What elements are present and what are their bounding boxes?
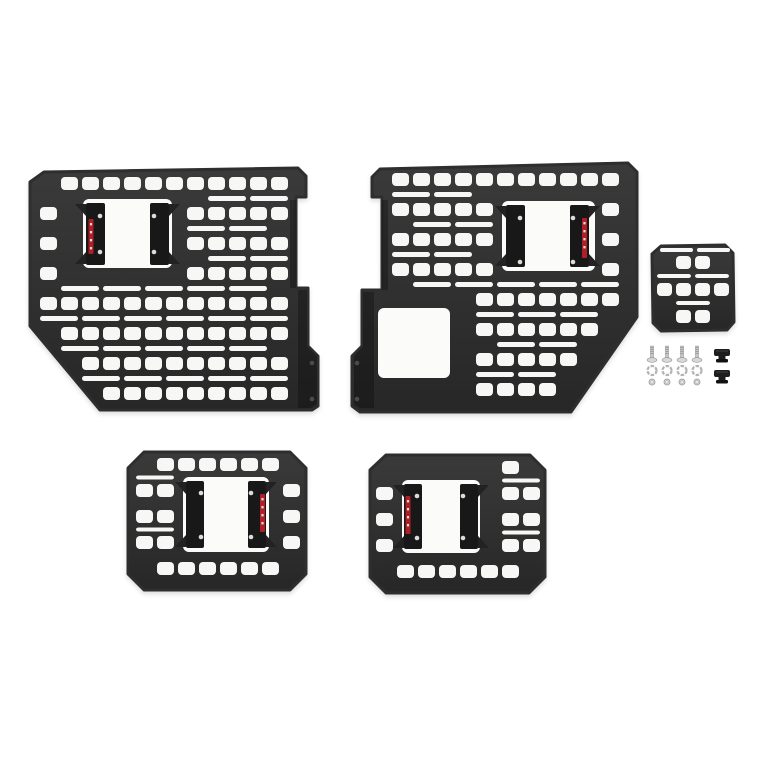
grid-slot — [413, 222, 451, 227]
grid-hole — [271, 237, 288, 250]
grid-slot — [103, 346, 141, 351]
bracket-screw-hole — [152, 250, 157, 255]
flange-hole — [355, 397, 360, 402]
bracket-screw-hole — [152, 214, 157, 219]
bracket-screw-hole — [571, 260, 576, 265]
grid-hole — [82, 177, 99, 190]
grid-hole — [714, 283, 729, 296]
grid-hole — [40, 207, 57, 220]
grid-slot — [392, 192, 430, 197]
grid-hole — [657, 283, 672, 296]
bracket-screw-hole — [98, 214, 103, 219]
grid-hole — [376, 539, 393, 552]
grid-slot — [208, 316, 246, 321]
grid-hole — [434, 263, 451, 276]
grid-hole — [502, 461, 519, 474]
panel-kit-layout — [30, 163, 734, 593]
grid-hole — [497, 383, 514, 396]
grid-hole — [61, 297, 78, 310]
grid-hole — [208, 267, 225, 280]
bracket-screw-hole — [415, 494, 420, 499]
grid-hole — [455, 263, 472, 276]
grid-hole — [518, 323, 535, 336]
grid-slot — [166, 316, 204, 321]
grid-hole — [581, 323, 598, 336]
lock-washer — [648, 366, 657, 375]
grid-hole — [560, 173, 577, 186]
grid-slot — [136, 476, 174, 480]
grid-slot — [455, 222, 493, 227]
grid-hole — [136, 484, 153, 497]
bracket-screw-hole — [98, 250, 103, 255]
grid-slot — [518, 372, 556, 377]
hex-nut — [694, 379, 700, 385]
grid-slot — [82, 316, 120, 321]
grid-slot — [250, 316, 288, 321]
grid-hole — [392, 263, 409, 276]
grid-slot — [413, 282, 451, 287]
grid-slot — [434, 192, 472, 197]
mounting-bolt — [647, 346, 657, 362]
molle-panel-large-driver-side — [30, 168, 318, 410]
grid-hole — [241, 562, 258, 575]
grid-slot — [695, 274, 729, 278]
grid-hole — [124, 357, 141, 370]
grid-hole — [40, 237, 57, 250]
grid-hole — [602, 263, 619, 276]
grid-slot — [476, 312, 514, 317]
grid-hole — [439, 565, 456, 578]
flange-hole — [355, 361, 360, 366]
grid-hole — [481, 565, 498, 578]
grid-slot — [124, 376, 162, 381]
grid-hole — [502, 513, 519, 526]
grid-hole — [392, 173, 409, 186]
bracket-screw-hole — [199, 491, 204, 496]
grid-hole — [199, 458, 216, 471]
hex-nut — [679, 379, 685, 385]
grid-hole — [157, 510, 174, 523]
grid-slot — [61, 346, 99, 351]
grid-slot — [208, 376, 246, 381]
grid-hole — [502, 539, 519, 552]
grid-slot — [229, 226, 267, 231]
grid-hole — [502, 565, 519, 578]
mounting-bolt — [692, 346, 702, 362]
grid-hole — [187, 327, 204, 340]
grid-slot — [40, 316, 78, 321]
grid-hole — [376, 487, 393, 500]
grid-slot — [166, 376, 204, 381]
grid-hole — [187, 387, 204, 400]
grid-slot — [497, 342, 535, 347]
grid-slot — [497, 282, 535, 287]
grid-hole — [208, 357, 225, 370]
grid-hole — [283, 510, 300, 523]
grid-hole — [581, 173, 598, 186]
grid-hole — [602, 293, 619, 306]
grid-hole — [523, 487, 540, 500]
grid-slot — [560, 312, 598, 317]
grid-hole — [208, 327, 225, 340]
grid-slot — [145, 346, 183, 351]
flange-hole — [310, 397, 315, 402]
grid-hole — [157, 458, 174, 471]
bracket-window-cutout — [378, 308, 450, 378]
hex-nut — [664, 379, 670, 385]
grid-slot — [187, 226, 225, 231]
grid-hole — [497, 353, 514, 366]
grid-slot — [229, 346, 267, 351]
grid-slot — [145, 286, 183, 291]
grid-hole — [539, 293, 556, 306]
grid-hole — [166, 177, 183, 190]
grid-hole — [455, 173, 472, 186]
grid-hole — [523, 513, 540, 526]
grid-slot — [502, 479, 540, 483]
grid-slot — [187, 286, 225, 291]
grid-slot — [660, 248, 693, 252]
grid-hole — [199, 562, 216, 575]
grid-slot — [136, 528, 174, 532]
grid-hole — [518, 353, 535, 366]
grid-hole — [476, 353, 493, 366]
grid-hole — [250, 327, 267, 340]
grid-hole — [229, 207, 246, 220]
grid-hole — [434, 173, 451, 186]
hex-nut — [649, 379, 655, 385]
mounting-flange — [290, 200, 296, 288]
bed-rail-clamp — [714, 370, 730, 384]
mounting-bolt — [677, 346, 687, 362]
bracket-screw-hole — [415, 536, 420, 541]
grid-hole — [187, 357, 204, 370]
grid-hole — [124, 297, 141, 310]
grid-hole — [502, 487, 519, 500]
grid-hole — [271, 177, 288, 190]
grid-hole — [497, 323, 514, 336]
grid-hole — [82, 357, 99, 370]
flange-hole — [310, 361, 315, 366]
grid-hole — [695, 310, 710, 323]
grid-slot — [434, 252, 472, 257]
grid-hole — [602, 233, 619, 246]
grid-slot — [657, 274, 691, 278]
grid-hole — [250, 267, 267, 280]
grid-hole — [413, 173, 430, 186]
grid-hole — [271, 357, 288, 370]
grid-hole — [157, 536, 174, 549]
bracket-screw-hole — [249, 491, 254, 496]
grid-hole — [271, 297, 288, 310]
grid-slot — [82, 376, 120, 381]
bracket-screw-hole — [199, 535, 204, 540]
lock-washer — [678, 366, 687, 375]
grid-hole — [676, 283, 691, 296]
grid-hole — [539, 323, 556, 336]
grid-hole — [136, 536, 153, 549]
grid-hole — [413, 263, 430, 276]
grid-hole — [145, 387, 162, 400]
grid-slot — [518, 312, 556, 317]
grid-hole — [40, 297, 57, 310]
grid-slot — [103, 286, 141, 291]
bracket-screw-hole — [571, 216, 576, 221]
lock-washer — [663, 366, 672, 375]
mounting-hardware-kit — [647, 346, 730, 385]
grid-hole — [124, 177, 141, 190]
grid-slot — [581, 282, 619, 287]
grid-hole — [250, 387, 267, 400]
grid-hole — [187, 297, 204, 310]
grid-hole — [229, 177, 246, 190]
grid-hole — [271, 267, 288, 280]
grid-hole — [539, 383, 556, 396]
mounting-flange — [382, 200, 388, 290]
grid-hole — [250, 297, 267, 310]
grid-hole — [124, 387, 141, 400]
grid-slot — [250, 256, 288, 261]
grid-hole — [82, 327, 99, 340]
grid-hole — [434, 203, 451, 216]
grid-hole — [397, 565, 414, 578]
grid-hole — [166, 387, 183, 400]
grid-slot — [476, 372, 514, 377]
grid-hole — [455, 233, 472, 246]
molle-panel-medium-right — [370, 455, 545, 593]
grid-hole — [166, 327, 183, 340]
grid-hole — [262, 562, 279, 575]
grid-hole — [250, 357, 267, 370]
grid-hole — [103, 297, 120, 310]
grid-slot — [392, 252, 430, 257]
grid-hole — [187, 237, 204, 250]
grid-hole — [229, 297, 246, 310]
grid-hole — [220, 458, 237, 471]
grid-hole — [476, 173, 493, 186]
lock-washer — [693, 366, 702, 375]
grid-hole — [220, 562, 237, 575]
grid-hole — [581, 293, 598, 306]
grid-hole — [418, 565, 435, 578]
grid-hole — [476, 263, 493, 276]
grid-hole — [103, 327, 120, 340]
grid-hole — [157, 562, 174, 575]
grid-hole — [523, 539, 540, 552]
grid-hole — [413, 233, 430, 246]
grid-hole — [283, 536, 300, 549]
grid-hole — [187, 267, 204, 280]
grid-hole — [560, 293, 577, 306]
grid-hole — [271, 207, 288, 220]
grid-slot — [61, 286, 99, 291]
grid-hole — [518, 383, 535, 396]
grid-hole — [455, 203, 472, 216]
mounting-bolt — [662, 346, 672, 362]
grid-hole — [145, 357, 162, 370]
grid-hole — [560, 323, 577, 336]
grid-hole — [187, 207, 204, 220]
grid-hole — [283, 484, 300, 497]
bracket-screw-hole — [518, 260, 523, 265]
grid-hole — [229, 267, 246, 280]
grid-hole — [460, 565, 477, 578]
grid-slot — [250, 376, 288, 381]
grid-hole — [241, 458, 258, 471]
grid-hole — [208, 387, 225, 400]
grid-hole — [208, 207, 225, 220]
grid-hole — [166, 297, 183, 310]
grid-slot — [676, 301, 710, 305]
grid-hole — [271, 387, 288, 400]
grid-slot — [502, 531, 540, 535]
grid-hole — [476, 293, 493, 306]
grid-hole — [602, 203, 619, 216]
grid-hole — [136, 510, 153, 523]
grid-hole — [166, 357, 183, 370]
grid-hole — [392, 233, 409, 246]
bracket-screw-hole — [518, 216, 523, 221]
grid-hole — [61, 177, 78, 190]
grid-hole — [103, 357, 120, 370]
molle-panel-accessory-small — [652, 245, 734, 331]
grid-hole — [376, 513, 393, 526]
grid-hole — [434, 233, 451, 246]
scene-svg — [0, 0, 758, 757]
grid-hole — [145, 327, 162, 340]
grid-hole — [476, 233, 493, 246]
molle-panel-large-passenger-side — [352, 163, 637, 412]
grid-hole — [695, 283, 710, 296]
grid-hole — [676, 310, 691, 323]
bracket-screw-hole — [249, 535, 254, 540]
grid-slot — [697, 248, 730, 252]
grid-hole — [229, 357, 246, 370]
grid-hole — [539, 353, 556, 366]
grid-hole — [208, 177, 225, 190]
grid-slot — [539, 282, 577, 287]
grid-hole — [602, 173, 619, 186]
grid-hole — [250, 207, 267, 220]
grid-hole — [40, 267, 57, 280]
grid-hole — [476, 383, 493, 396]
grid-hole — [518, 293, 535, 306]
grid-slot — [250, 196, 288, 201]
product-photo-stage — [0, 0, 758, 757]
grid-hole — [250, 177, 267, 190]
grid-hole — [497, 173, 514, 186]
grid-hole — [61, 327, 78, 340]
grid-hole — [676, 256, 691, 269]
grid-hole — [518, 173, 535, 186]
grid-hole — [497, 293, 514, 306]
grid-hole — [208, 297, 225, 310]
grid-hole — [250, 237, 267, 250]
grid-hole — [392, 203, 409, 216]
grid-hole — [695, 256, 710, 269]
grid-slot — [187, 346, 225, 351]
bracket-screw-hole — [461, 494, 466, 499]
grid-slot — [229, 286, 267, 291]
grid-hole — [229, 387, 246, 400]
bracket-screw-hole — [461, 536, 466, 541]
grid-hole — [178, 458, 195, 471]
grid-hole — [229, 237, 246, 250]
grid-hole — [229, 327, 246, 340]
grid-hole — [476, 203, 493, 216]
grid-hole — [413, 203, 430, 216]
grid-hole — [560, 353, 577, 366]
grid-hole — [178, 562, 195, 575]
grid-slot — [208, 256, 246, 261]
molle-panel-medium-left — [128, 452, 306, 590]
grid-hole — [476, 323, 493, 336]
grid-slot — [455, 282, 493, 287]
grid-hole — [271, 327, 288, 340]
grid-hole — [187, 177, 204, 190]
grid-slot — [539, 342, 577, 347]
bed-rail-clamp — [714, 349, 730, 363]
grid-hole — [82, 297, 99, 310]
grid-hole — [103, 177, 120, 190]
grid-hole — [262, 458, 279, 471]
grid-slot — [208, 196, 246, 201]
grid-hole — [145, 177, 162, 190]
grid-hole — [103, 387, 120, 400]
grid-hole — [145, 297, 162, 310]
grid-hole — [124, 327, 141, 340]
grid-hole — [539, 173, 556, 186]
grid-hole — [208, 237, 225, 250]
grid-slot — [124, 316, 162, 321]
grid-hole — [157, 484, 174, 497]
